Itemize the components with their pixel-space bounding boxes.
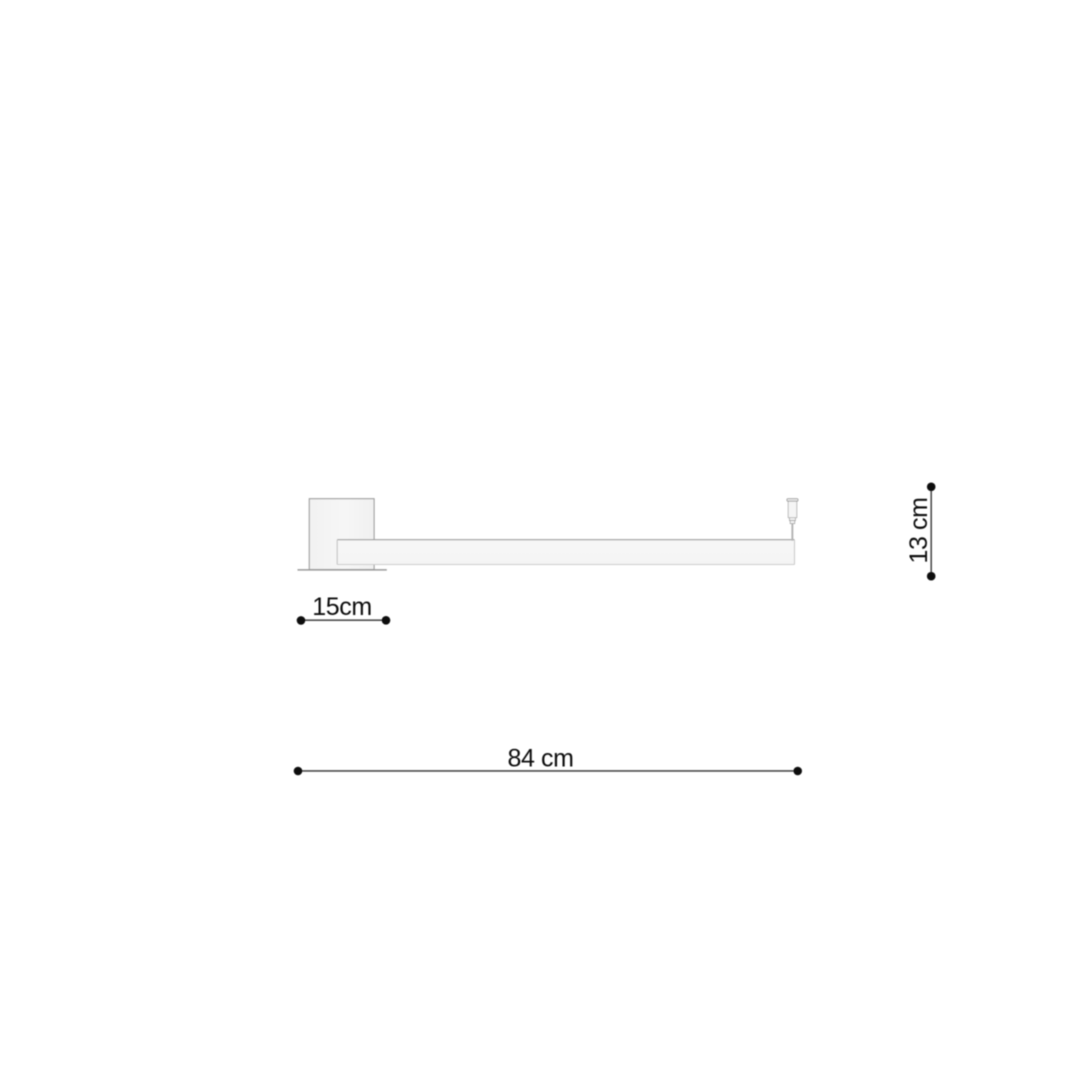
svg-text:13 cm: 13 cm [905, 497, 933, 563]
svg-text:84 cm: 84 cm [507, 744, 573, 772]
svg-text:15cm: 15cm [312, 593, 372, 621]
